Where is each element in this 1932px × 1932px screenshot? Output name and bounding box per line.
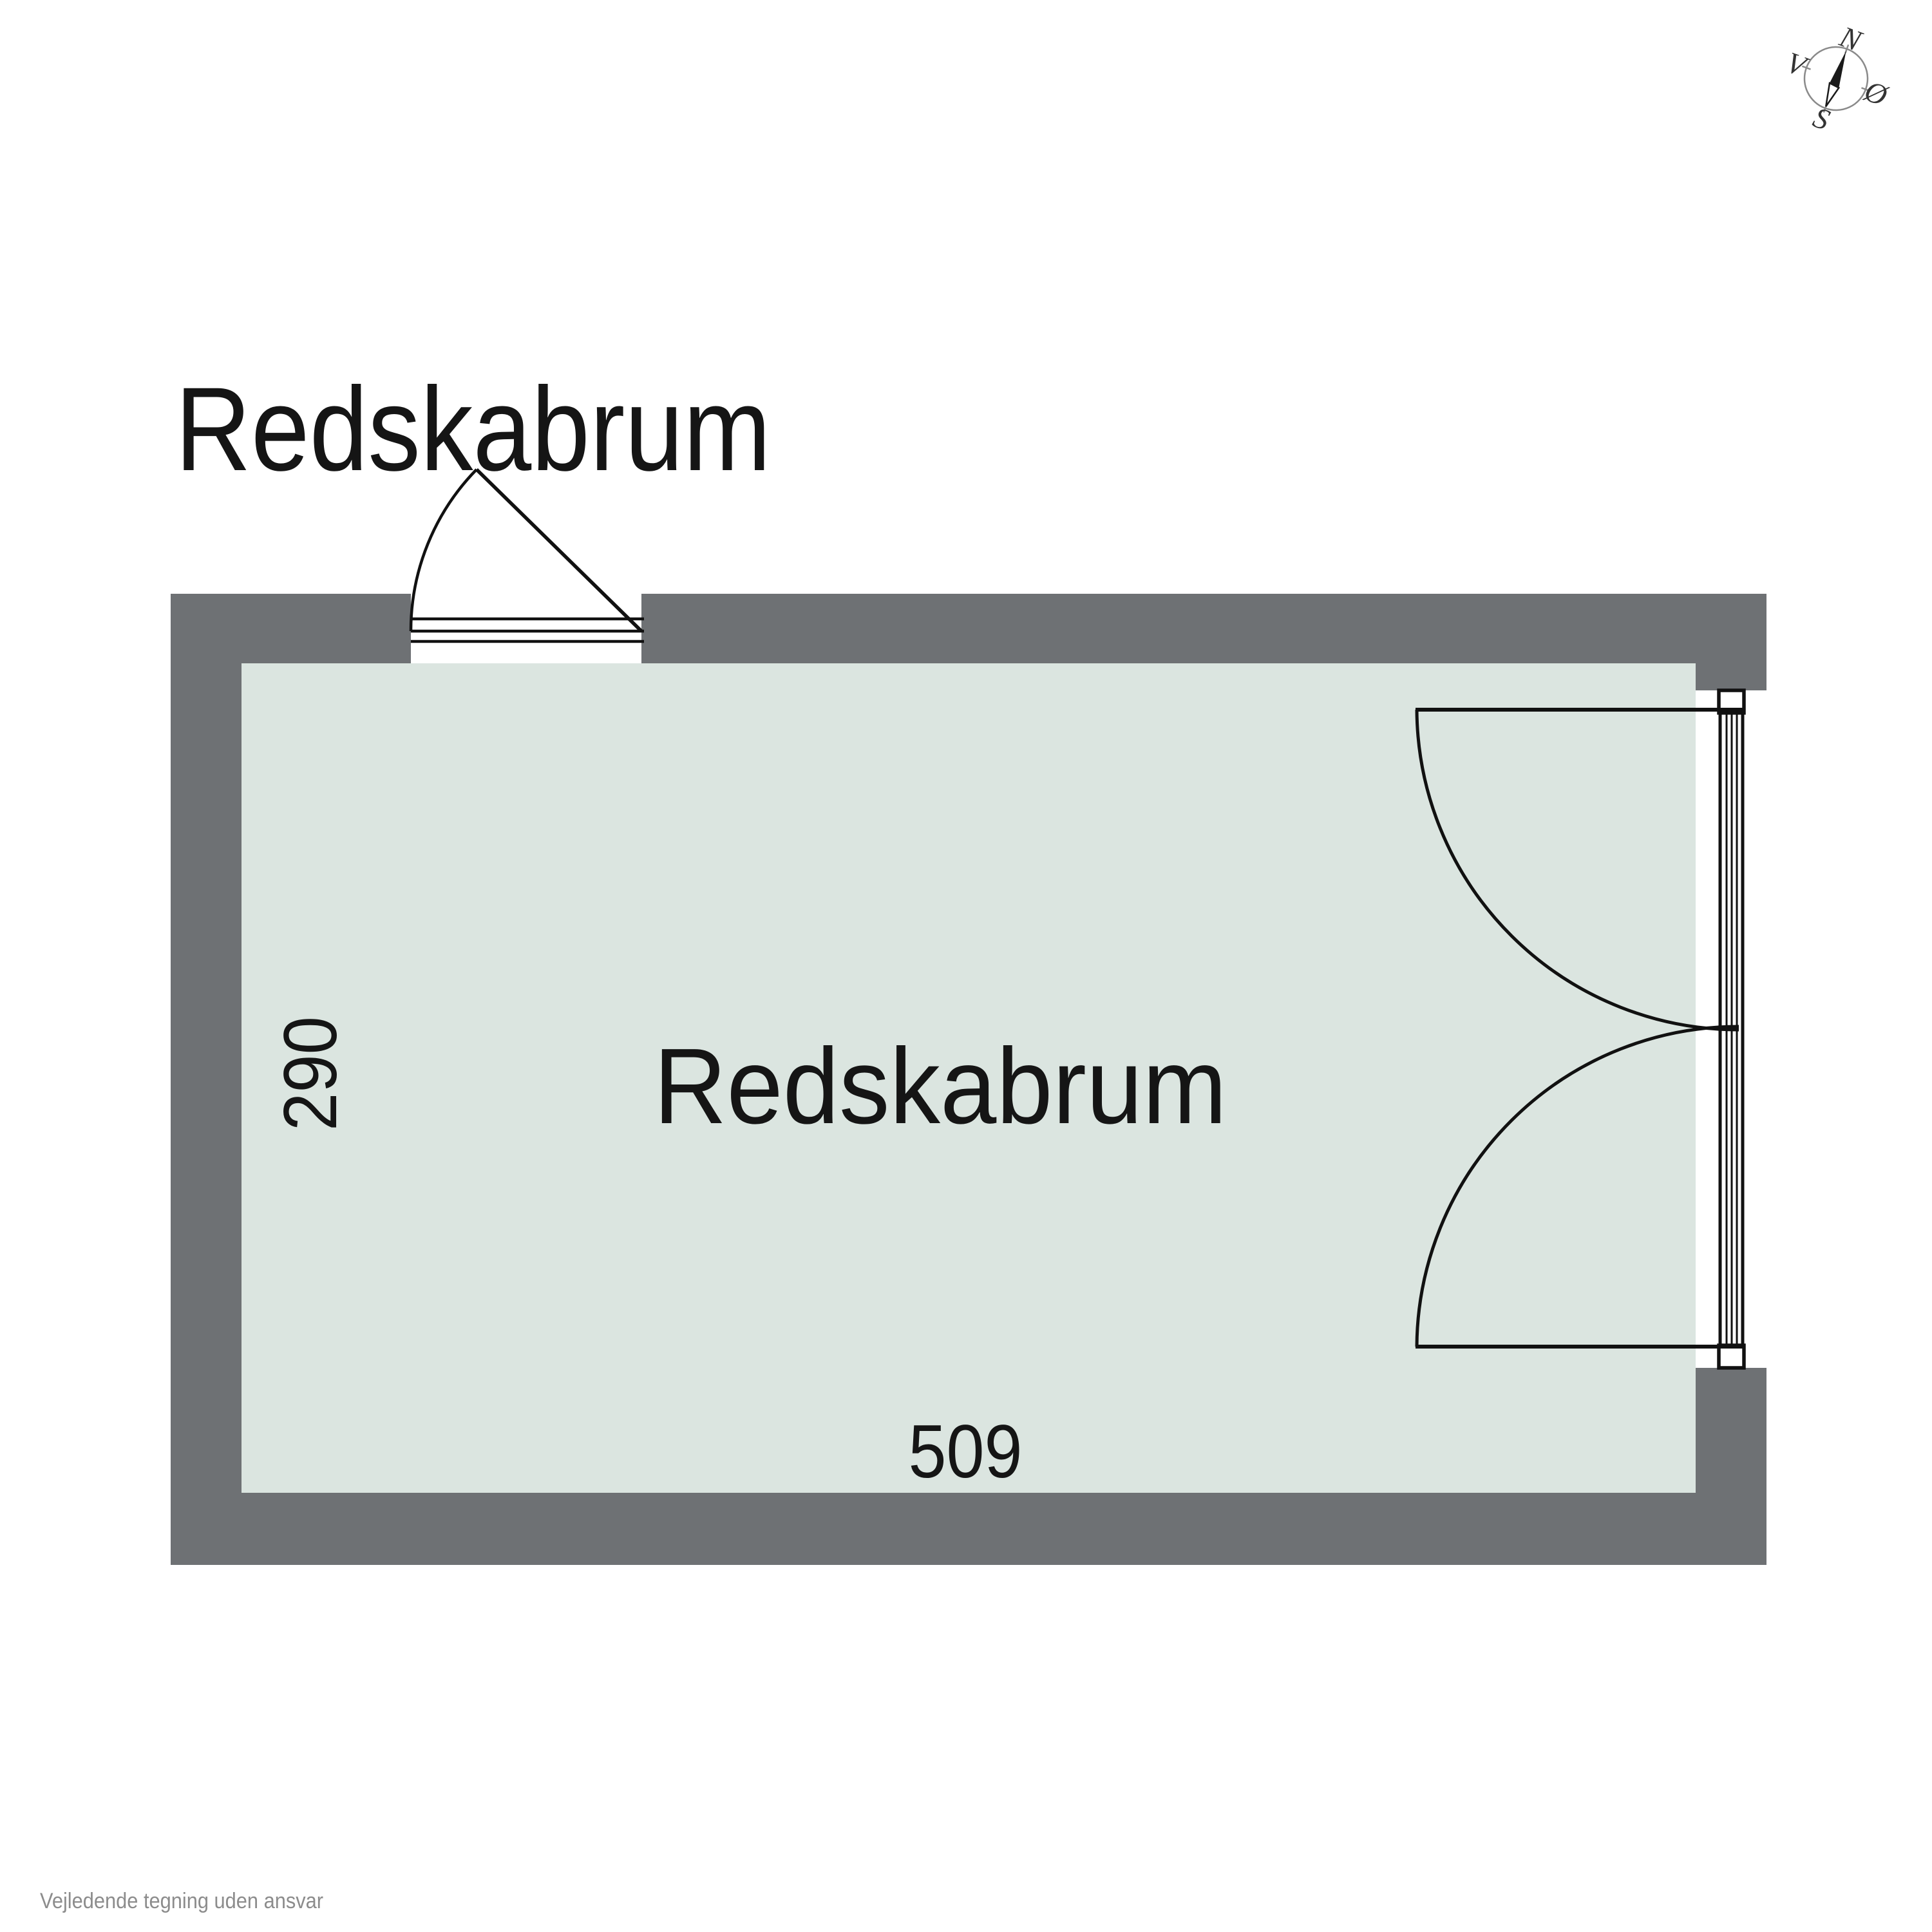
- compass-label-south: S: [1809, 100, 1834, 137]
- wall-right-upper: [1696, 594, 1766, 690]
- footer-disclaimer: Vejledende tegning uden ansvar: [40, 1889, 323, 1913]
- floor-plan-drawing: N Ø S V Redskabrum Redskabrum 509 290 Ve…: [0, 0, 1932, 1932]
- room-name-label: Redskabrum: [654, 1027, 1227, 1146]
- compass-label-east: Ø: [1860, 74, 1893, 113]
- wall-left: [171, 594, 241, 1565]
- compass-rose: N Ø S V: [1767, 6, 1907, 153]
- room-width-dimension-label: 509: [909, 1409, 1023, 1493]
- room-depth-dimension-label: 290: [268, 1016, 352, 1131]
- plan-title: Redskabrum: [175, 363, 771, 496]
- floor-plan-page: N Ø S V Redskabrum Redskabrum 509 290 Ve…: [0, 0, 1932, 1932]
- double-door-jamb-bottom: [1719, 1345, 1744, 1368]
- wall-right-lower: [1696, 1368, 1766, 1565]
- wall-top-right-segment: [641, 594, 1766, 663]
- compass-label-north: N: [1835, 19, 1866, 58]
- wall-bottom: [171, 1493, 1766, 1565]
